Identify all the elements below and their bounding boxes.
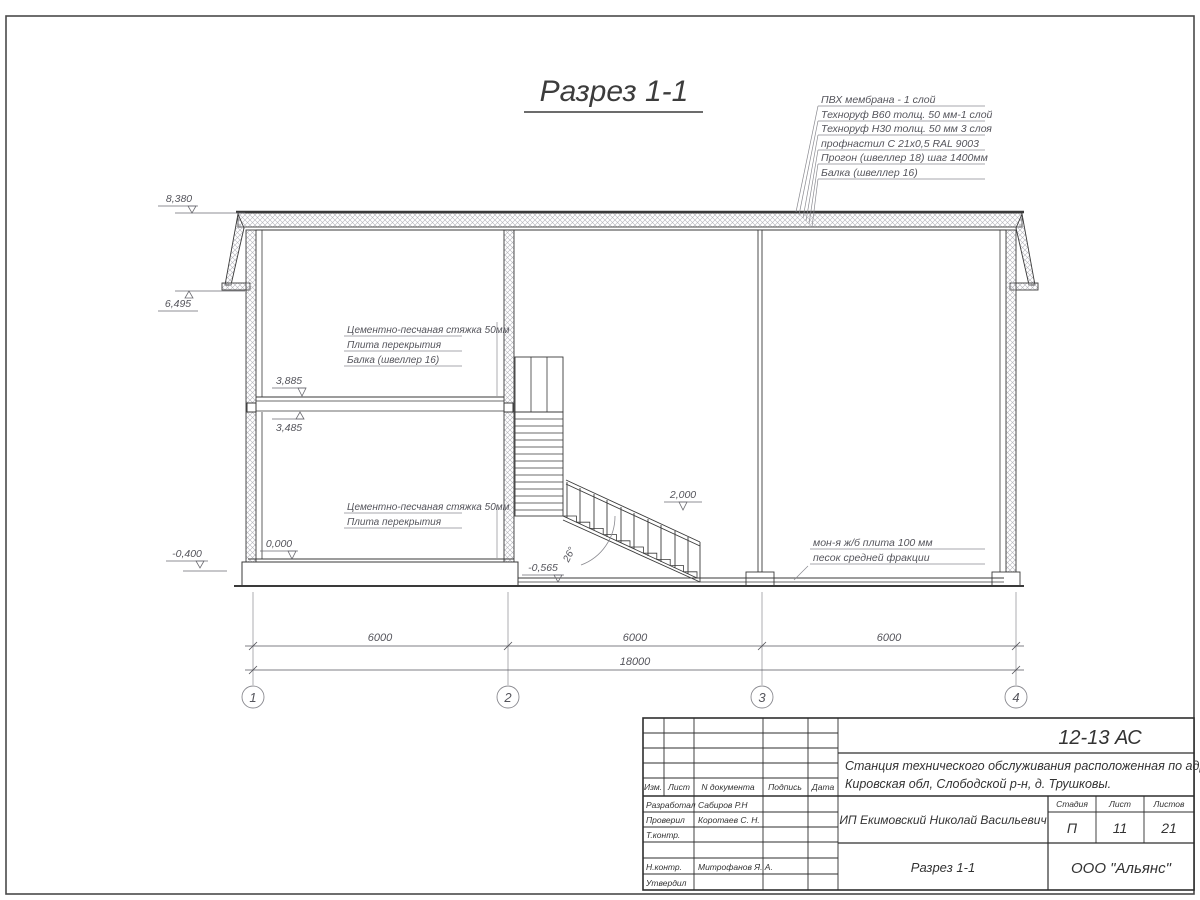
tb-sheet-name: Разрез 1-1 <box>911 860 975 875</box>
roof-legend-item: Техноруф Н30 толщ. 50 мм 3 слоя <box>821 123 992 135</box>
axis-label-1: 1 <box>249 690 256 705</box>
roof-legend-item: Техноруф В60 толщ. 50 мм-1 слой <box>821 109 993 121</box>
column-3-footing <box>746 572 774 586</box>
wall-axis-1 <box>246 230 256 562</box>
ground-label: песок средней фракции <box>813 552 930 564</box>
dim-bay3: 6000 <box>877 632 902 644</box>
floor-label: Плита перекрытия <box>347 340 442 351</box>
roof-legend: ПВХ мембрана - 1 слой Техноруф В60 толщ.… <box>796 94 993 227</box>
wall-axis-4 <box>1006 230 1016 572</box>
title-block: Изм. Лист N документа Подпись Дата Разра… <box>643 718 1200 890</box>
stair-flight-side <box>515 412 563 516</box>
tb-project-line1: Станция технического обслуживания распол… <box>845 759 1200 773</box>
tb-stage-value: П <box>1067 820 1078 836</box>
tb-col-izm: Изм. <box>644 782 662 792</box>
stair-angle-label: 26° <box>561 546 578 565</box>
tb-role-approved: Утвердил <box>645 878 687 888</box>
floor-label: Балка (швеллер 16) <box>347 355 439 366</box>
section-drawing-canvas: Разрез 1-1 <box>0 0 1200 900</box>
tb-role-tcontrol: Т.контр. <box>646 830 680 840</box>
stair-angle-arc <box>581 516 615 565</box>
roof-slab <box>238 213 1022 227</box>
elevation-roof-top: 8,380 <box>166 193 192 205</box>
floor-label: Цементно-песчаная стяжка 50мм <box>347 325 510 336</box>
tb-project-line2: Кировская обл, Слободской р-н, д. Трушко… <box>845 777 1111 791</box>
ground-slab-labels: мон-я ж/б плита 100 мм песок средней фра… <box>794 537 985 580</box>
tb-sheets-label: Листов <box>1153 799 1186 809</box>
tb-sheets-value: 21 <box>1160 820 1177 836</box>
elevation-grade: -0,400 <box>172 548 202 560</box>
column-axis-3 <box>758 230 762 572</box>
elevation-slab-top: 3,885 <box>276 375 302 387</box>
tb-col-sign: Подпись <box>768 782 802 792</box>
roof-legend-item: Балка (швеллер 16) <box>821 167 918 179</box>
slab-bearing-right <box>504 403 513 412</box>
elevation-eave: 6,495 <box>165 298 191 310</box>
tb-role-developed: Разработал <box>646 800 696 810</box>
tb-name-ncontrol: Митрофанов Я. А. <box>698 862 773 872</box>
drawing-sheet: Разрез 1-1 <box>0 0 1200 900</box>
tb-sheet-label: Лист <box>1108 799 1131 809</box>
tb-document-code: 12-13 АС <box>1058 727 1142 749</box>
plinth <box>242 562 518 586</box>
tb-name-checked: Коротаев С. Н. <box>698 815 760 825</box>
right-eave <box>1016 214 1035 285</box>
tb-role-checked: Проверил <box>646 815 685 825</box>
elevation-pit: -0,565 <box>528 562 558 574</box>
dim-bay1: 6000 <box>368 632 393 644</box>
lower-floor-labels: Цементно-песчаная стяжка 50мм Плита пере… <box>344 502 510 558</box>
tb-name-developed: Сабиров Р.Н <box>698 800 748 810</box>
stair-stringer-bottom <box>563 520 700 582</box>
stair-upper-flight <box>515 357 563 516</box>
roof-legend-item: профнастил С 21х0,5 RAL 9003 <box>821 138 979 150</box>
axis-label-3: 3 <box>758 690 766 705</box>
tb-col-doc: N документа <box>701 782 754 792</box>
dim-total: 18000 <box>620 656 651 668</box>
tb-stage-label: Стадия <box>1056 799 1088 809</box>
drawing-title: Разрез 1-1 <box>524 75 703 112</box>
axis-label-4: 4 <box>1012 690 1019 705</box>
stair-railing-panel <box>515 357 563 412</box>
wall-4-footing <box>992 572 1020 586</box>
dim-bay2: 6000 <box>623 632 648 644</box>
axis-label-2: 2 <box>503 690 512 705</box>
slab-bearing-left <box>247 403 256 412</box>
floor-label: Цементно-песчаная стяжка 50мм <box>347 502 510 513</box>
ground-label: мон-я ж/б плита 100 мм <box>813 537 933 549</box>
left-eave <box>225 214 244 285</box>
tb-role-ncontrol: Н.контр. <box>646 862 682 872</box>
tb-organization: ООО "Альянс" <box>1071 860 1172 877</box>
tb-sheet-value: 11 <box>1113 820 1128 836</box>
tb-col-list: Лист <box>667 782 690 792</box>
dimension-block: 6000 6000 6000 18000 1 2 3 4 <box>242 592 1027 708</box>
page-title: Разрез 1-1 <box>540 75 689 108</box>
roof-legend-item: ПВХ мембрана - 1 слой <box>821 94 936 106</box>
elevation-slab-bottom: 3,485 <box>276 422 302 434</box>
tb-client: ИП Екимовский Николай Васильевич <box>839 813 1046 827</box>
tb-col-date: Дата <box>811 782 835 792</box>
upper-floor-labels: Цементно-песчаная стяжка 50мм Плита пере… <box>344 322 510 396</box>
roof-legend-item: Прогон (швеллер 18) шаг 1400мм <box>821 152 988 164</box>
floor-label: Плита перекрытия <box>347 517 442 528</box>
elevation-floor: 0,000 <box>266 538 292 550</box>
elevation-landing: 2,000 <box>669 489 696 501</box>
building-section <box>222 212 1038 586</box>
